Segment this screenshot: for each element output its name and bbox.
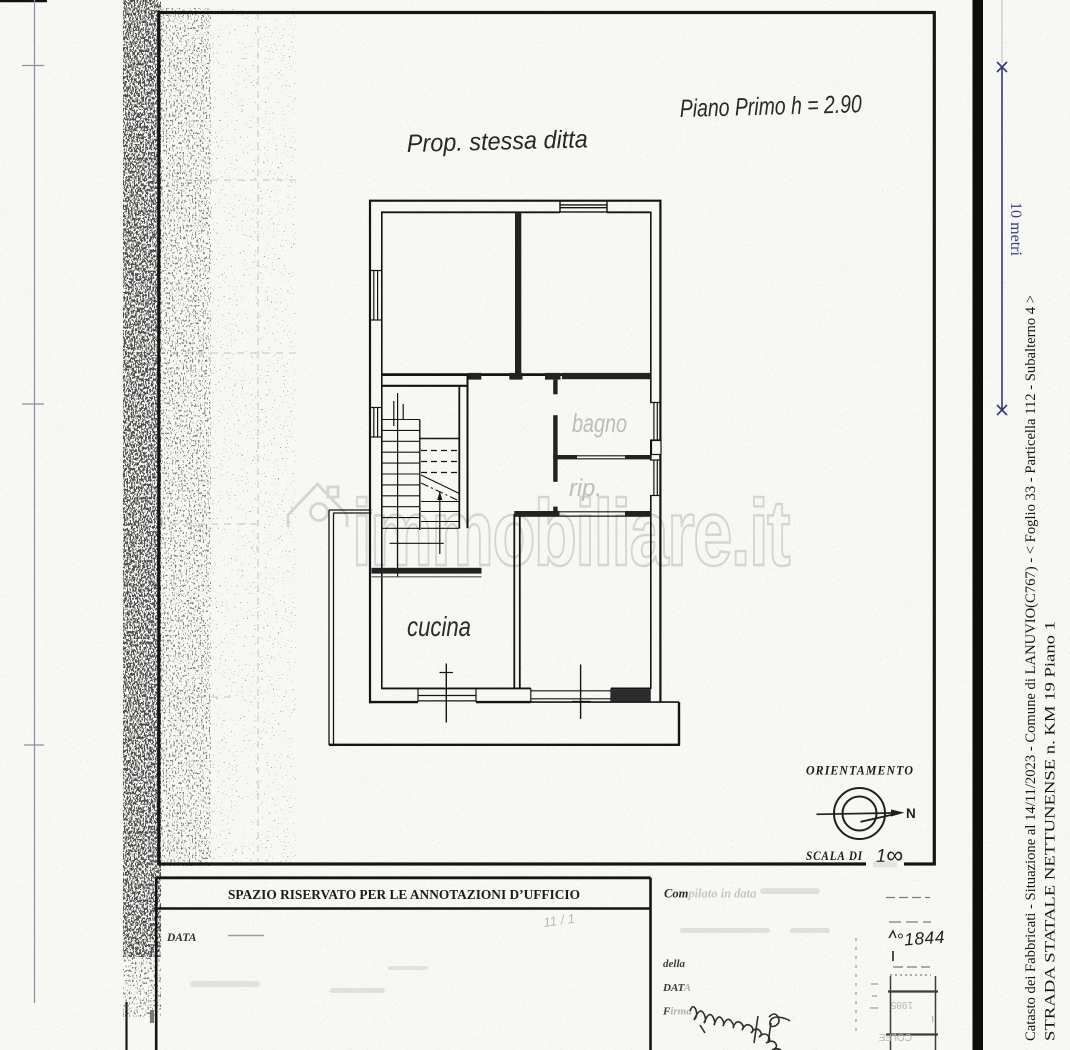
svg-text:DATA: DATA xyxy=(662,982,691,994)
svg-text:cucina: cucina xyxy=(407,611,471,642)
svg-text:della: della xyxy=(663,958,685,970)
svg-text:rip.: rip. xyxy=(569,475,602,502)
svg-text:Compilato in data: Compilato in data xyxy=(664,887,756,901)
svg-text:N: N xyxy=(906,806,916,821)
svg-text:10 metri: 10 metri xyxy=(1007,202,1024,257)
svg-text:I: I xyxy=(931,1014,934,1024)
svg-text:ORIENTAMENTO: ORIENTAMENTO xyxy=(806,763,914,778)
svg-text:DATA: DATA xyxy=(166,932,197,944)
svg-text:1985: 1985 xyxy=(890,999,913,1010)
svg-text:COLFE: COLFE xyxy=(878,1031,912,1042)
svg-text:STRADA STATALE NETTUNENSE n. K: STRADA STATALE NETTUNENSE n. KM 19 Piano… xyxy=(1043,621,1059,1041)
svg-text:Piano Primo h = 2.90: Piano Primo h = 2.90 xyxy=(679,90,862,123)
svg-text:Catasto dei Fabbricati - Situa: Catasto dei Fabbricati - Situazione al 1… xyxy=(1023,295,1039,1041)
svg-text:SPAZIO RISERVATO PER LE ANNOTA: SPAZIO RISERVATO PER LE ANNOTAZIONI D’UF… xyxy=(228,887,580,902)
svg-text:Prop. stessa ditta: Prop. stessa ditta xyxy=(406,125,588,158)
svg-text:°1844: °1844 xyxy=(896,927,946,950)
svg-text:Firma: Firma xyxy=(662,1006,692,1018)
svg-text:SCALA DI: SCALA DI xyxy=(806,849,863,863)
svg-text:bagno: bagno xyxy=(572,408,627,438)
